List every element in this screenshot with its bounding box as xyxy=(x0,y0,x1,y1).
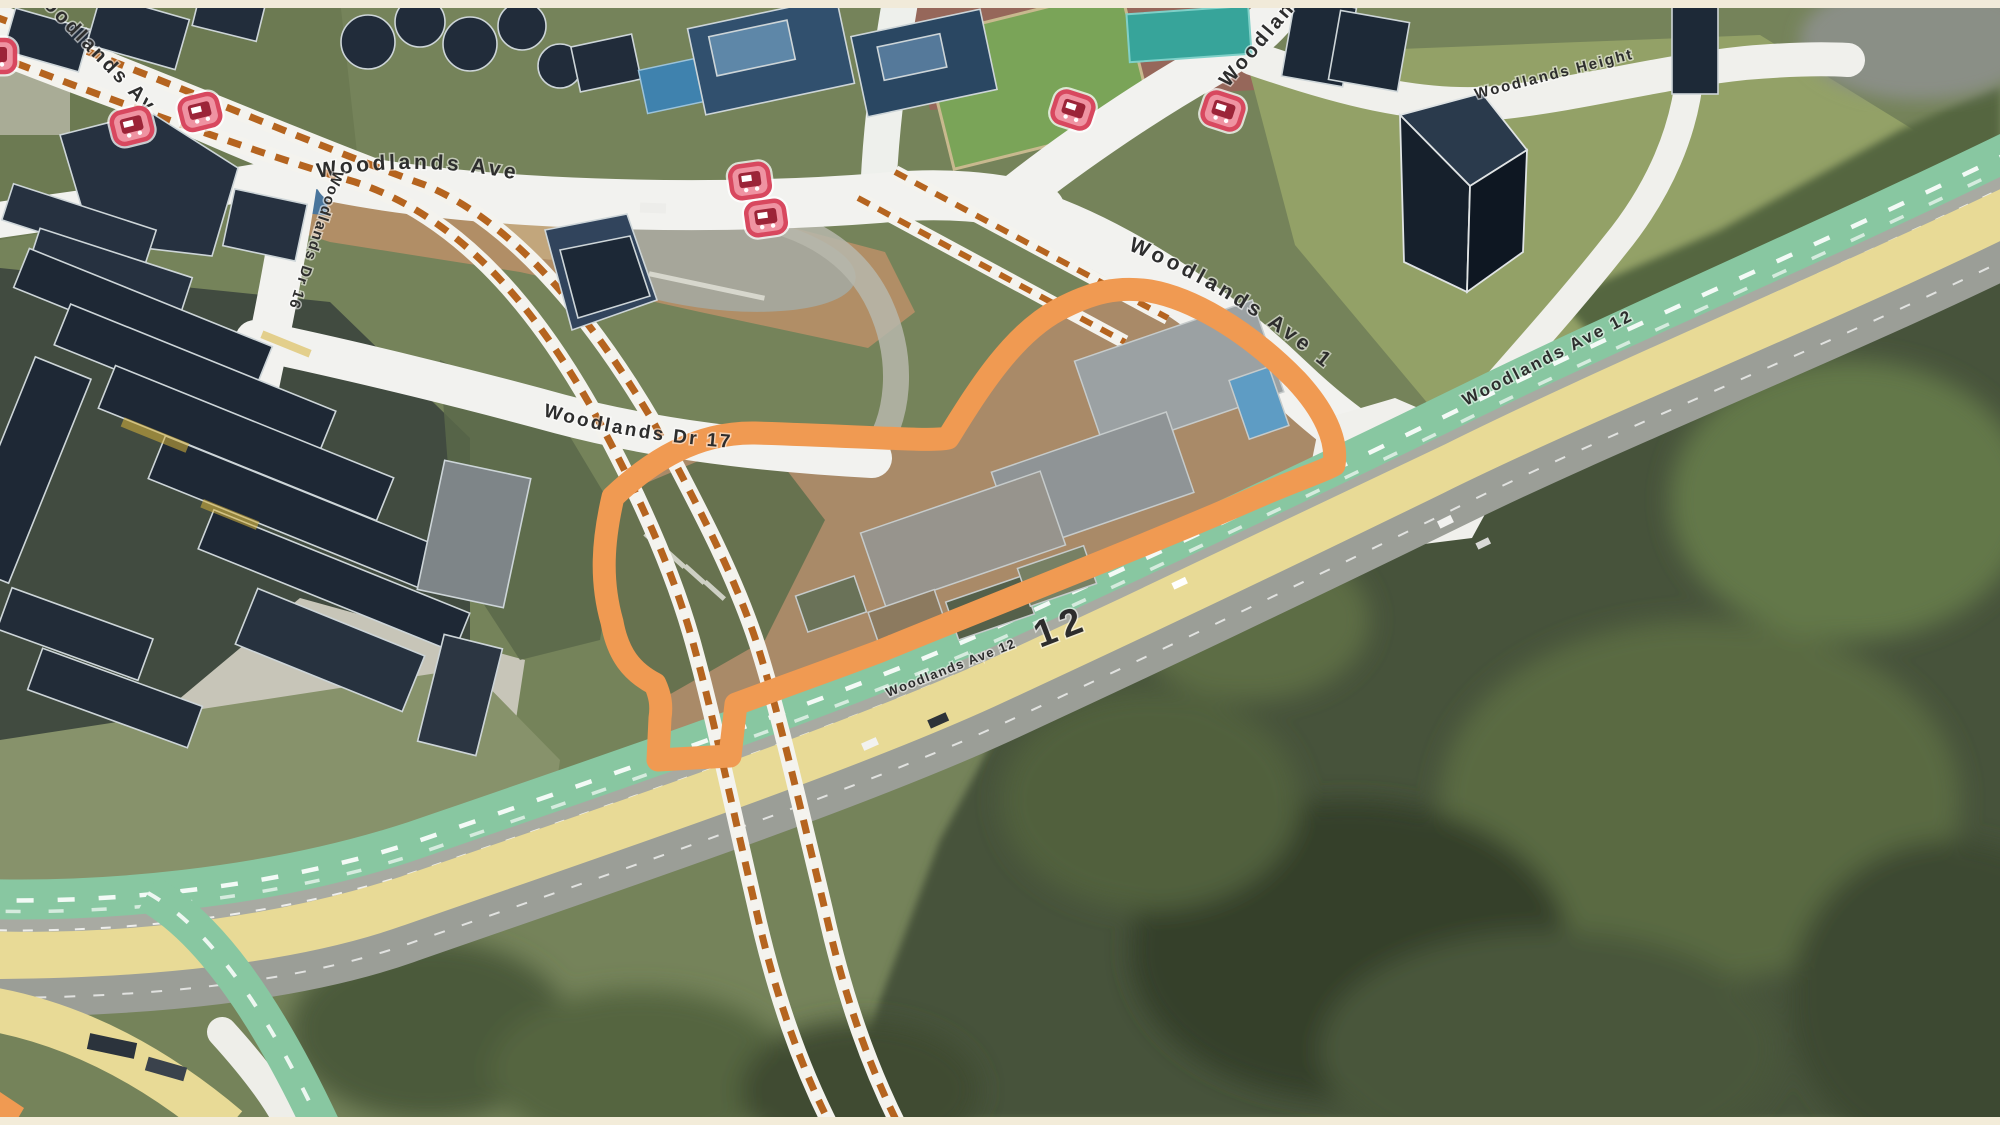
aerial-map-svg[interactable]: Woodlands Ave 1 Woodlands Ave 1 Woodland… xyxy=(0,0,2000,1125)
frame-strip-bottom xyxy=(0,1117,2000,1125)
frame-strip-top xyxy=(0,0,2000,8)
map-canvas[interactable]: Woodlands Ave 1 Woodlands Ave 1 Woodland… xyxy=(0,0,2000,1125)
bus-stop-icon[interactable] xyxy=(726,159,775,203)
bus-stop-icon[interactable] xyxy=(742,196,791,240)
bus-stop-icon[interactable] xyxy=(0,37,18,75)
